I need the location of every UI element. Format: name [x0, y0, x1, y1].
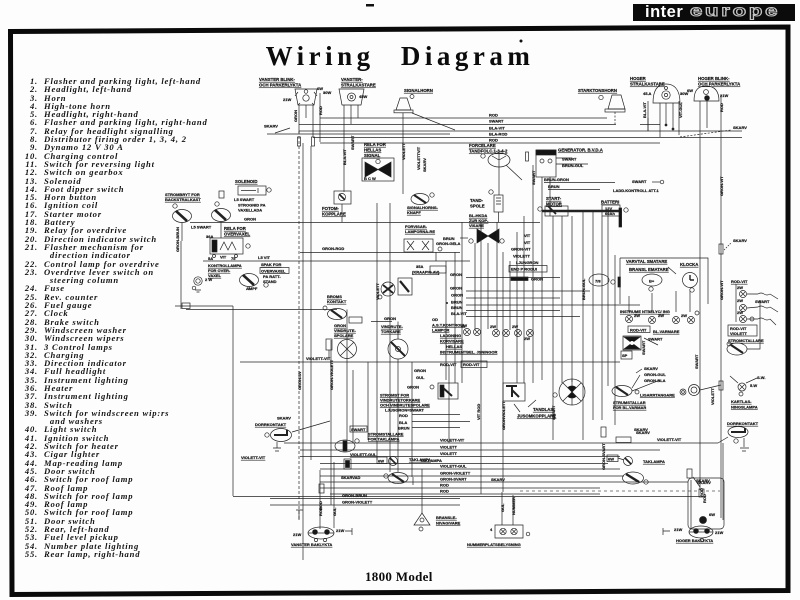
svg-text:GUL: GUL	[500, 503, 505, 512]
svg-text:DORRKONTAKT: DORRKONTAKT	[727, 421, 759, 426]
svg-text:2 W: 2 W	[205, 277, 212, 282]
svg-text:START-: START-	[546, 196, 562, 201]
svg-text:BRUN-GUL: BRUN-GUL	[562, 163, 584, 168]
svg-text:45.A: 45.A	[643, 91, 652, 96]
svg-text:SKARV: SKARV	[644, 366, 658, 371]
svg-text:4: 4	[490, 527, 493, 532]
svg-text:6W: 6W	[608, 457, 614, 462]
svg-text:VIOLETT-VIT: VIOLETT-VIT	[440, 438, 465, 443]
svg-text:TANDFOLC.1-3-4-2: TANDFOLC.1-3-4-2	[469, 149, 508, 154]
svg-text:GRON-VIT: GRON-VIT	[719, 176, 724, 196]
svg-text:VIOLETT: VIOLETT	[401, 143, 406, 160]
svg-text:GRON-VIOLETT: GRON-VIOLETT	[342, 500, 373, 505]
svg-text:VIOLETT: VIOLETT	[375, 283, 380, 300]
svg-text:2W: 2W	[681, 313, 687, 318]
svg-text:FORCELARE: FORCELARE	[469, 143, 496, 148]
svg-text:FOTOM-: FOTOM-	[322, 206, 339, 211]
svg-text:STRALKASTARE: STRALKASTARE	[341, 83, 376, 88]
svg-text:LJUNGRON: LJUNGRON	[516, 260, 539, 265]
svg-text:6W: 6W	[709, 512, 715, 517]
svg-text:FOR BL.VARMAR: FOR BL.VARMAR	[613, 405, 646, 410]
svg-text:BRANSL EMATARE: BRANSL EMATARE	[629, 267, 669, 272]
svg-text:7/8: 7/8	[595, 279, 601, 284]
svg-text:KARTLAS-: KARTLAS-	[731, 399, 752, 404]
svg-text:SPOLARE: SPOLARE	[334, 333, 354, 338]
svg-text:KOPPLARE: KOPPLARE	[322, 212, 346, 217]
svg-text:2W: 2W	[658, 313, 664, 318]
svg-text:STROMCTALLARE: STROMCTALLARE	[728, 338, 764, 343]
svg-text:ROD-VIT: ROD-VIT	[731, 279, 748, 284]
svg-text:VIOLETT-VIT: VIOLETT-VIT	[657, 437, 682, 442]
svg-text:ORON-SV: ORON-SV	[297, 371, 302, 390]
svg-text:SKARVAD: SKARVAD	[341, 475, 361, 480]
svg-text:BACKSTRALKAST: BACKSTRALKAST	[165, 197, 201, 202]
svg-text:GRON-VIT: GRON-VIT	[511, 247, 531, 252]
svg-text:ROD: ROD	[489, 113, 498, 118]
svg-text:30W: 30W	[323, 90, 331, 95]
svg-text:ROD: ROD	[719, 103, 724, 112]
svg-text:(KRAAPIG AV): (KRAAPIG AV)	[412, 270, 440, 275]
svg-text:AMPF: AMPF	[246, 286, 258, 291]
svg-text:2W: 2W	[490, 324, 496, 329]
svg-text:TAND-: TAND-	[470, 198, 484, 203]
svg-text:GUL: GUL	[416, 375, 425, 380]
svg-text:BATTERI: BATTERI	[601, 200, 619, 205]
svg-text:LADDNING: LADDNING	[440, 333, 461, 338]
svg-text:75: 75	[231, 256, 236, 261]
svg-text:SKARV: SKARV	[422, 158, 427, 172]
svg-text:GRON: GRON	[293, 110, 298, 122]
svg-text:BRUN: BRUN	[451, 300, 463, 305]
svg-text:45W: 45W	[359, 94, 367, 99]
svg-text:GRON-VIOLETT: GRON-VIOLETT	[440, 471, 471, 476]
svg-text:LAMPOR: LAMPOR	[432, 328, 449, 333]
svg-text:RELA FOR: RELA FOR	[224, 226, 247, 231]
svg-text:VANSTER BAKLYKTA: VANSTER BAKLYKTA	[291, 542, 332, 547]
svg-text:5.W: 5.W	[750, 383, 757, 388]
svg-text:SKARV: SKARV	[697, 480, 711, 485]
svg-text:SKARV: SKARV	[491, 477, 505, 482]
svg-text:GENERATOR. B.V.D.A: GENERATOR. B.V.D.A	[558, 148, 603, 153]
svg-text:HOGER: HOGER	[630, 76, 647, 81]
svg-text:KLOCKA: KLOCKA	[680, 262, 698, 267]
svg-text:2W: 2W	[737, 298, 743, 303]
svg-text:VIT: VIT	[524, 233, 531, 238]
svg-text:FOR TAKLAMPA: FOR TAKLAMPA	[368, 437, 400, 442]
svg-text:INSTRUMENTBEL. JSNINGOR: INSTRUMENTBEL. JSNINGOR	[440, 350, 497, 355]
svg-text:L5 VIT: L5 VIT	[258, 255, 271, 260]
svg-text:RELA FOR: RELA FOR	[364, 142, 387, 147]
svg-text:VIOLETT: VIOLETT	[513, 254, 530, 259]
svg-text:21W: 21W	[283, 97, 291, 102]
svg-text:NUMMERPLATSBELYSNING: NUMMERPLATSBELYSNING	[467, 542, 521, 547]
svg-text:GRON-ROD: GRON-ROD	[322, 246, 344, 251]
svg-text:VIOLETT: VIOLETT	[730, 331, 747, 336]
svg-text:ROD: ROD	[440, 483, 449, 488]
svg-text:VIOLETT: VIOLETT	[710, 388, 715, 405]
svg-text:SWART: SWART	[562, 157, 577, 162]
svg-text:SPOLE: SPOLE	[470, 204, 485, 209]
svg-text:LJUSGRON=SWART: LJUSGRON=SWART	[385, 408, 425, 413]
svg-text:VIOLETT-GUL: VIOLETT-GUL	[440, 464, 467, 469]
svg-text:OCH PARKERLYKTA: OCH PARKERLYKTA	[259, 83, 301, 88]
svg-text:SWART: SWART	[755, 299, 770, 304]
svg-text:GRON-VIOLETT: GRON-VIOLETT	[329, 359, 334, 390]
svg-text:VIOLETT-VIT: VIOLETT-VIT	[306, 356, 331, 361]
svg-text:VIOLETT-VIT: VIOLETT-VIT	[241, 455, 266, 460]
svg-text:ROD-VIT: ROD-VIT	[440, 362, 457, 367]
svg-text:VIT ROD: VIT ROD	[476, 404, 481, 420]
svg-text:SPAK FOR: SPAK FOR	[261, 262, 281, 267]
svg-text:GRON-BRUN: GRON-BRUN	[342, 493, 367, 498]
svg-text:21W: 21W	[715, 530, 723, 535]
svg-text:VISARE: VISARE	[469, 223, 484, 228]
svg-text:SKARV: SKARV	[277, 416, 291, 421]
svg-text:GRON: GRON	[450, 286, 462, 291]
svg-text:ROD: ROD	[318, 106, 323, 115]
svg-text:SWART: SWART	[641, 340, 646, 355]
svg-text:BL.VARMARE: BL.VARMARE	[653, 329, 680, 334]
svg-text:6W: 6W	[687, 88, 693, 93]
svg-text:DORRKONTAKT: DORRKONTAKT	[255, 422, 287, 427]
svg-text:SKARV: SKARV	[634, 427, 648, 432]
svg-text:VANSTER BLINK-: VANSTER BLINK-	[259, 77, 296, 82]
svg-text:NIVAGIVARE: NIVAGIVARE	[436, 521, 461, 526]
svg-text:ROD: ROD	[440, 489, 449, 494]
svg-text:2W: 2W	[524, 336, 530, 341]
svg-text:5A: 5A	[208, 256, 213, 261]
svg-text:BLA-VIT: BLA-VIT	[451, 311, 467, 316]
svg-text:SIGNALHORN: SIGNALHORN	[404, 88, 433, 93]
svg-text:21W: 21W	[336, 528, 344, 533]
svg-text:GRON: GRON	[244, 217, 256, 222]
svg-text:BRUN: BRUN	[443, 236, 455, 241]
svg-text:VIT: VIT	[524, 240, 531, 245]
svg-text:NINGSLAMPA: NINGSLAMPA	[731, 405, 758, 410]
svg-text:2W: 2W	[737, 285, 743, 290]
svg-text:ORON: ORON	[451, 293, 463, 298]
svg-text:KONTAKT: KONTAKT	[327, 299, 347, 304]
svg-text:GRON-GELA: GRON-GELA	[436, 241, 461, 246]
svg-text:GRON-BRUN: GRON-BRUN	[175, 227, 180, 252]
svg-text:GUL: GUL	[332, 507, 337, 516]
svg-text:JUSOMKOPPLARE: JUSOMKOPPLARE	[517, 414, 556, 419]
svg-text:LIGARRTANGARE: LIGARRTANGARE	[640, 393, 675, 398]
svg-text:HOGER BLINK-: HOGER BLINK-	[698, 76, 730, 81]
svg-text:GRON: GRON	[407, 385, 419, 390]
svg-text:SP: SP	[622, 353, 628, 358]
svg-text:SKARV: SKARV	[733, 125, 747, 130]
svg-text:VIOLETTVIT: VIOLETTVIT	[416, 146, 421, 170]
svg-text:SWART: SWART	[632, 179, 647, 184]
svg-text:GRONVIOLETT: GRONVIOLETT	[501, 401, 506, 430]
svg-text:TAKLAMPA: TAKLAMPA	[409, 457, 431, 462]
svg-text:60Ah: 60Ah	[605, 211, 615, 216]
svg-text:OVERVAXEL: OVERVAXEL	[261, 269, 286, 274]
svg-text:SOLENOID: SOLENOID	[235, 179, 257, 184]
svg-text:BLA-VIT: BLA-VIT	[489, 126, 505, 131]
svg-text:OD: OD	[432, 317, 438, 322]
svg-text:ROD: ROD	[399, 413, 408, 418]
svg-text:BLA: BLA	[399, 420, 407, 425]
svg-text:VAXELLADA: VAXELLADA	[238, 208, 262, 213]
svg-text:VIOLETT-GUL: VIOLETT-GUL	[350, 452, 377, 457]
svg-text:ROD: ROD	[702, 494, 707, 503]
svg-text:ROD-VIT: ROD-VIT	[630, 328, 647, 333]
svg-text:BLA-VIT: BLA-VIT	[642, 102, 647, 118]
svg-text:BRUN-GRON: BRUN-GRON	[544, 177, 569, 182]
svg-text:LAMPORNA-RE: LAMPORNA-RE	[405, 229, 435, 234]
svg-text:HELLAS: HELLAS	[446, 344, 462, 349]
svg-text:TAKLAMPA: TAKLAMPA	[643, 459, 665, 464]
svg-text:OVERVAXEL: OVERVAXEL	[224, 232, 250, 237]
svg-text:21W: 21W	[293, 532, 301, 537]
svg-text:BRANSLE-: BRANSLE-	[436, 515, 457, 520]
svg-text:2W: 2W	[737, 310, 743, 315]
svg-text:35A: 35A	[416, 264, 423, 269]
svg-text:ROD: ROD	[318, 507, 323, 516]
svg-text:S.W.: S.W.	[757, 375, 765, 380]
svg-text:6W: 6W	[378, 459, 384, 464]
svg-text:B C W: B C W	[364, 176, 376, 181]
svg-text:2W: 2W	[634, 313, 640, 318]
svg-text:GRON-SVART: GRON-SVART	[440, 477, 467, 482]
svg-text:B+: B+	[649, 279, 655, 284]
svg-text:ROD: ROD	[489, 138, 498, 143]
svg-text:GRON-GUL: GRON-GUL	[644, 372, 666, 377]
svg-text:VIOLETT: VIOLETT	[440, 445, 457, 450]
svg-text:VANSTER-: VANSTER-	[341, 77, 363, 82]
svg-text:VIT-GUL: VIT-GUL	[678, 102, 683, 118]
svg-text:KORVISARE: KORVISARE	[440, 339, 464, 344]
svg-text:21W: 21W	[674, 527, 682, 532]
svg-text:GRON: GRON	[414, 368, 426, 373]
svg-text:BLA-VIT: BLA-VIT	[342, 149, 347, 165]
svg-text:L5 SWART: L5 SWART	[234, 197, 255, 202]
svg-text:SWART: SWART	[531, 170, 536, 185]
svg-text:VARVTAL SMATARE: VARVTAL SMATARE	[626, 259, 667, 264]
svg-text:ROD-VIT: ROD-VIT	[463, 362, 480, 367]
svg-text:SIGNAL: SIGNAL	[364, 153, 381, 158]
svg-text:VIOLETT: VIOLETT	[440, 451, 457, 456]
svg-text:GRON: GRON	[450, 272, 462, 277]
svg-text:BLA-ROD: BLA-ROD	[489, 132, 508, 137]
svg-text:GRON-VIT: GRON-VIT	[719, 280, 724, 300]
svg-text:VIT: VIT	[220, 255, 227, 260]
svg-text:HOGER BAKLYKTA: HOGER BAKLYKTA	[676, 538, 713, 543]
svg-text:KNAPF: KNAPF	[407, 210, 421, 215]
svg-text:SWART: SWART	[694, 354, 699, 369]
svg-text:NUMMER: NUMMER	[511, 497, 516, 515]
svg-text:STARKTONSHORN: STARKTONSHORN	[578, 88, 617, 93]
svg-text:SKARV: SKARV	[733, 238, 747, 243]
svg-text:SWART: SWART	[489, 119, 504, 124]
svg-text:HELLAS: HELLAS	[364, 148, 381, 153]
svg-text:BRUN-GUL: BRUN-GUL	[581, 278, 586, 300]
svg-text:BRUN: BRUN	[398, 426, 410, 431]
svg-text:TANDLAS: TANDLAS	[533, 407, 553, 412]
svg-text:BRUN: BRUN	[451, 305, 463, 310]
svg-text:LADD.KONTROLL ATT.1: LADD.KONTROLL ATT.1	[613, 188, 659, 193]
svg-text:SWART: SWART	[351, 427, 366, 432]
svg-text:L5 SWART: L5 SWART	[191, 225, 212, 230]
svg-text:SKARV: SKARV	[264, 124, 278, 129]
